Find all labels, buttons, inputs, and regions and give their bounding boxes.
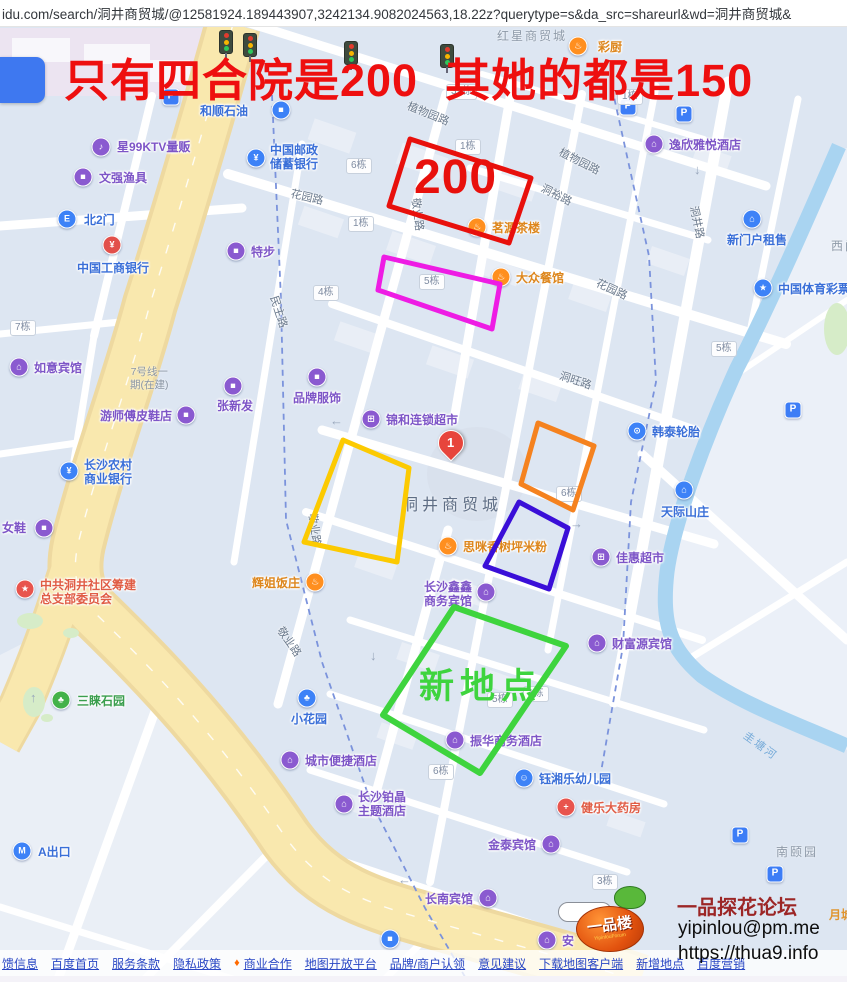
road-label: 植物园路 — [556, 144, 602, 178]
poi-label[interactable]: 文强渔具 — [99, 171, 147, 185]
poi-label[interactable]: 健乐大药房 — [581, 801, 641, 815]
road-label: 花园路 — [289, 185, 325, 208]
poi-icon[interactable]: ♨ — [492, 268, 511, 287]
browser-address-bar[interactable]: idu.com/search/洞井商贸城/@12581924.189443907… — [0, 0, 847, 27]
teapot-icon — [614, 886, 646, 909]
area-label: 南颐园 — [776, 843, 818, 860]
road-label: 敬业路 — [305, 512, 325, 547]
poi-label[interactable]: 星99KTV量贩 — [117, 140, 190, 154]
poi-icon[interactable]: ■ — [381, 930, 400, 949]
poi-icon[interactable]: ■ — [74, 168, 93, 187]
poi-label[interactable]: 张新发 — [217, 399, 253, 413]
poi-label[interactable]: 长沙鑫鑫商务宾馆 — [424, 580, 472, 609]
building-badge: 5栋 — [419, 274, 445, 290]
poi-icon[interactable]: ♪ — [92, 138, 111, 157]
road-direction-arrow: ↓ — [694, 162, 701, 177]
poi-icon[interactable]: ⊞ — [592, 548, 611, 567]
handwritten-caption: 只有四合院是200 其她的都是150 — [64, 44, 753, 109]
poi-icon[interactable]: ⌂ — [10, 358, 29, 377]
poi-label[interactable]: 北2门 — [84, 213, 115, 227]
building-badge: 5栋 — [711, 341, 737, 357]
poi-icon[interactable]: ♣ — [298, 689, 317, 708]
footer-link[interactable]: 隐私政策 — [173, 955, 221, 972]
poi-icon[interactable]: ¥ — [247, 149, 266, 168]
building-badge: 6栋 — [428, 764, 454, 780]
poi-icon[interactable]: ⌂ — [477, 583, 496, 602]
poi-label[interactable]: A出口 — [38, 845, 71, 859]
poi-label[interactable]: 辉姐饭庄 — [252, 576, 300, 590]
watermark-email: yipinlou@pm.me — [678, 918, 820, 940]
road-label: 洞旺路 — [558, 367, 594, 392]
poi-icon[interactable]: ☺ — [515, 769, 534, 788]
poi-label[interactable]: 钰湘乐幼儿园 — [539, 772, 611, 786]
poi-label[interactable]: 中国体育彩票 — [778, 282, 847, 296]
area-label: 红星商贸城 — [497, 27, 567, 44]
watermark-site: https://thua9.info — [678, 943, 819, 965]
poi-label[interactable]: 财富源宾馆 — [612, 637, 672, 651]
poi-icon[interactable]: ⌂ — [645, 135, 664, 154]
annotation-price-200: 200 — [414, 150, 497, 205]
poi-label[interactable]: 天际山庄 — [661, 505, 709, 519]
footer-link[interactable]: 地图开放平台 — [305, 955, 377, 972]
poi-icon[interactable]: ■ — [227, 242, 246, 261]
poi-icon[interactable]: ♨ — [439, 537, 458, 556]
building-badge: 1栋 — [348, 216, 374, 232]
poi-icon[interactable]: ★ — [754, 279, 773, 298]
marker-number: 1 — [439, 431, 463, 454]
footer-link[interactable]: 品牌/商户认领 — [390, 955, 465, 972]
poi-icon[interactable]: ♨ — [306, 573, 325, 592]
footer-link[interactable]: 服务条款 — [112, 955, 160, 972]
poi-label[interactable]: 佳惠超市 — [616, 551, 664, 565]
poi-icon[interactable]: ■ — [177, 406, 196, 425]
area-label: 西门 — [831, 237, 847, 254]
forum-logo: 一品楼 YipinlouForum — [576, 906, 644, 952]
poi-label[interactable]: 大众餐馆 — [516, 271, 564, 285]
footer-link[interactable]: 馈信息 — [2, 955, 38, 972]
poi-label[interactable]: 中国工商银行 — [77, 261, 149, 275]
poi-label[interactable]: 长南宾馆 — [425, 892, 473, 906]
annotation-new-place: 新地点 — [419, 658, 542, 709]
footer-link[interactable]: 商业合作 — [244, 955, 292, 972]
poi-label[interactable]: 三睐石园 — [77, 694, 125, 708]
forum-watermark: 一品楼 YipinlouForum 一品探花论坛 yipinlou@pm.me … — [540, 880, 847, 980]
road-label: 民主路 — [266, 294, 291, 330]
poi-icon[interactable]: + — [557, 798, 576, 817]
area-label: 7号线一期(在建) — [130, 366, 169, 392]
building-badge: 6栋 — [346, 158, 372, 174]
poi-label[interactable]: 品牌服饰 — [293, 391, 341, 405]
poi-icon[interactable]: ⌂ — [281, 751, 300, 770]
poi-label[interactable]: 女鞋 — [2, 521, 26, 535]
poi-label[interactable]: 新门户租售 — [727, 233, 787, 247]
poi-label[interactable]: 如意宾馆 — [34, 361, 82, 375]
poi-icon[interactable]: ⌂ — [743, 210, 762, 229]
poi-icon[interactable]: ■ — [35, 519, 54, 538]
poi-icon[interactable]: E — [58, 210, 77, 229]
baidu-map-screenshot: 和顺石油■星99KTV量贩♪文强渔具■北2门E中国工商银行¥中国邮政储蓄银行¥特… — [0, 0, 847, 982]
poi-label[interactable]: 逸欣雅悦酒店 — [669, 138, 741, 152]
poi-label[interactable]: 金泰宾馆 — [488, 838, 536, 852]
poi-icon[interactable]: ⌂ — [588, 634, 607, 653]
poi-label[interactable]: 振华商务酒店 — [470, 734, 542, 748]
parking-icon[interactable]: P — [732, 827, 749, 844]
road-direction-arrow: ← — [330, 413, 343, 428]
road-direction-arrow: ↓ — [370, 648, 377, 663]
road-label: 花园路 — [594, 275, 631, 303]
area-label: 洞井商贸城 — [402, 491, 502, 515]
poi-icon[interactable]: ♨ — [468, 218, 487, 237]
poi-icon[interactable]: ■ — [308, 368, 327, 387]
poi-label[interactable]: 锦和连锁超市 — [386, 413, 458, 427]
building-badge: 4栋 — [313, 285, 339, 301]
watermark-title: 一品探花论坛 — [677, 891, 797, 920]
area-label: 圭塘河 — [740, 728, 781, 764]
poi-label[interactable]: 小花园 — [291, 712, 327, 726]
road-label: 洞裕路 — [538, 180, 575, 209]
poi-label[interactable]: 长沙农村商业银行 — [84, 458, 132, 487]
poi-icon[interactable]: ⊞ — [362, 410, 381, 429]
road-label: 洞井路 — [686, 204, 709, 240]
parking-icon[interactable]: P — [785, 402, 802, 419]
poi-icon[interactable]: ⌂ — [542, 835, 561, 854]
road-direction-arrow: → — [570, 516, 583, 531]
poi-icon[interactable]: ⌂ — [479, 889, 498, 908]
map-label-layer: 和顺石油■星99KTV量贩♪文强渔具■北2门E中国工商银行¥中国邮政储蓄银行¥特… — [0, 0, 847, 982]
road-direction-arrow: ↑ — [30, 690, 37, 705]
poi-icon[interactable]: ¥ — [103, 236, 122, 255]
poi-icon[interactable]: ⌂ — [335, 795, 354, 814]
poi-icon[interactable]: ¥ — [60, 462, 79, 481]
poi-label[interactable]: 中国邮政储蓄银行 — [270, 143, 318, 172]
poi-label[interactable]: 韩泰轮胎 — [652, 425, 700, 439]
poi-label[interactable]: 游师傅皮鞋店 — [100, 409, 172, 423]
building-badge: 6栋 — [556, 486, 582, 502]
poi-label[interactable]: 特步 — [251, 245, 275, 259]
poi-label[interactable]: 城市便捷酒店 — [305, 754, 377, 768]
poi-icon[interactable]: ⊙ — [628, 422, 647, 441]
poi-icon[interactable]: ⌂ — [446, 731, 465, 750]
road-direction-arrow: ← — [398, 872, 411, 887]
footer-link[interactable]: 百度首页 — [51, 955, 99, 972]
poi-icon[interactable]: M — [13, 842, 32, 861]
poi-label[interactable]: 中共洞井社区筹建总支部委员会 — [40, 578, 136, 607]
flame-icon: ♦ — [234, 957, 240, 969]
poi-icon[interactable]: ♣ — [52, 691, 71, 710]
poi-icon[interactable]: ⌂ — [675, 481, 694, 500]
url-text: idu.com/search/洞井商贸城/@12581924.189443907… — [0, 3, 847, 23]
poi-icon[interactable]: ■ — [224, 377, 243, 396]
poi-label[interactable]: 长沙铂晶主题酒店 — [358, 790, 406, 819]
road-label: 敬业路 — [273, 623, 305, 659]
poi-label[interactable]: 思咪香树坪米粉 — [463, 540, 547, 554]
poi-label[interactable]: 茗源茶楼 — [492, 221, 540, 235]
building-badge: 7栋 — [10, 320, 36, 336]
footer-link[interactable]: 意见建议 — [478, 955, 526, 972]
poi-icon[interactable]: ★ — [16, 580, 35, 599]
